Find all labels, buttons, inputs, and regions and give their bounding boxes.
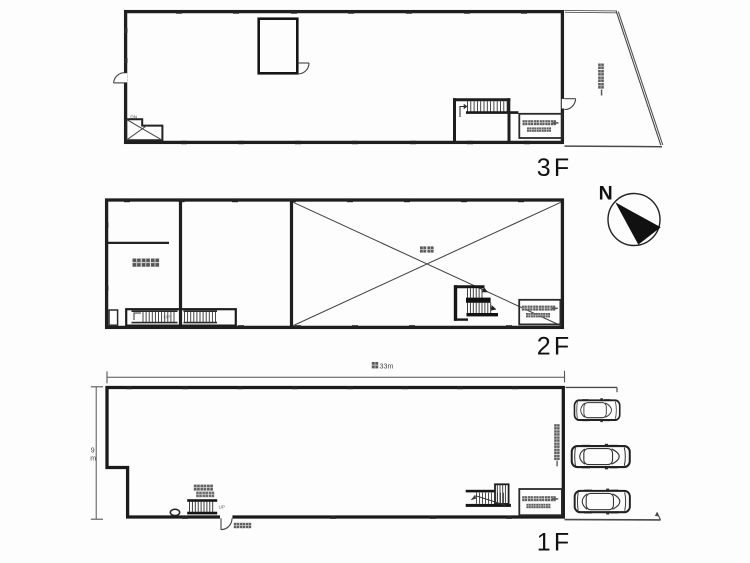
svg-text:33m: 33m bbox=[380, 362, 394, 371]
svg-text:9: 9 bbox=[91, 448, 95, 455]
svg-text:UP: UP bbox=[164, 315, 170, 320]
svg-text:3 F: 3 F bbox=[537, 154, 569, 182]
svg-text:DN: DN bbox=[130, 114, 137, 119]
svg-text:2 F: 2 F bbox=[537, 333, 569, 361]
svg-text:UP: UP bbox=[219, 504, 225, 509]
svg-text:N: N bbox=[599, 182, 613, 204]
svg-text:1 F: 1 F bbox=[537, 529, 569, 557]
svg-text:m: m bbox=[90, 456, 96, 463]
